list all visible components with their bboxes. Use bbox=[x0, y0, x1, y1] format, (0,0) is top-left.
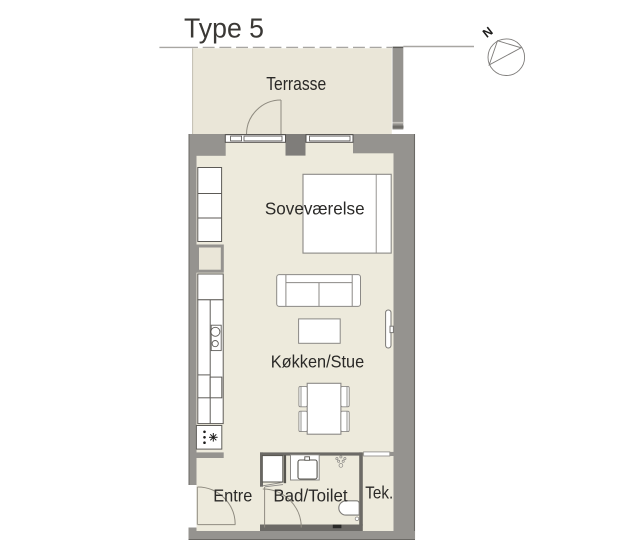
svg-text:Soveværelse: Soveværelse bbox=[265, 198, 365, 218]
svg-text:Entre: Entre bbox=[213, 485, 252, 505]
svg-text:Tek.: Tek. bbox=[365, 482, 393, 502]
svg-text:Køkken/Stue: Køkken/Stue bbox=[271, 352, 364, 372]
svg-text:Bad/Toilet: Bad/Toilet bbox=[273, 485, 347, 505]
svg-text:Terrasse: Terrasse bbox=[266, 73, 326, 94]
svg-text:Type 5: Type 5 bbox=[184, 13, 264, 44]
